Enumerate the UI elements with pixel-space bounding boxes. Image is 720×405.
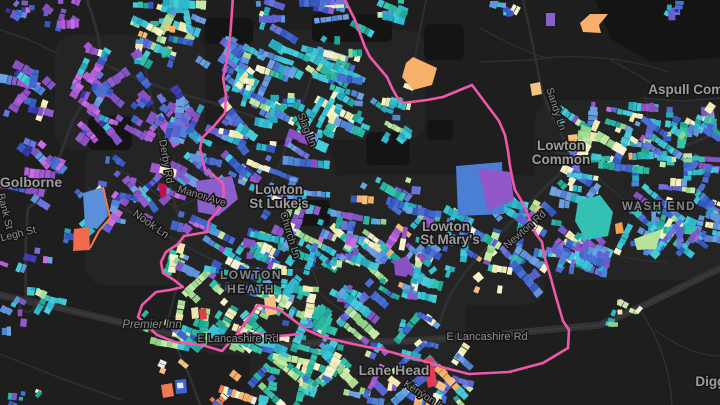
svg-text:WASH END: WASH END [622,201,696,213]
svg-text:Lowton: Lowton [537,138,585,153]
svg-text:LOWTON: LOWTON [220,268,282,282]
svg-text:Premier Inn: Premier Inn [122,319,181,331]
svg-text:St Mary's: St Mary's [420,232,479,247]
svg-text:Aspull Common: Aspull Common [648,82,720,97]
svg-text:Lowton: Lowton [255,182,303,197]
svg-text:HEATH: HEATH [227,282,275,296]
svg-text:Common: Common [532,152,591,167]
svg-text:E Lancashire Rd: E Lancashire Rd [197,333,278,345]
svg-text:E Lancashire Rd: E Lancashire Rd [446,331,527,343]
svg-text:Lane Head: Lane Head [359,362,430,378]
svg-text:St Luke's: St Luke's [249,196,308,211]
svg-text:Golborne: Golborne [0,174,62,190]
svg-text:Diggle: Diggle [695,374,720,389]
